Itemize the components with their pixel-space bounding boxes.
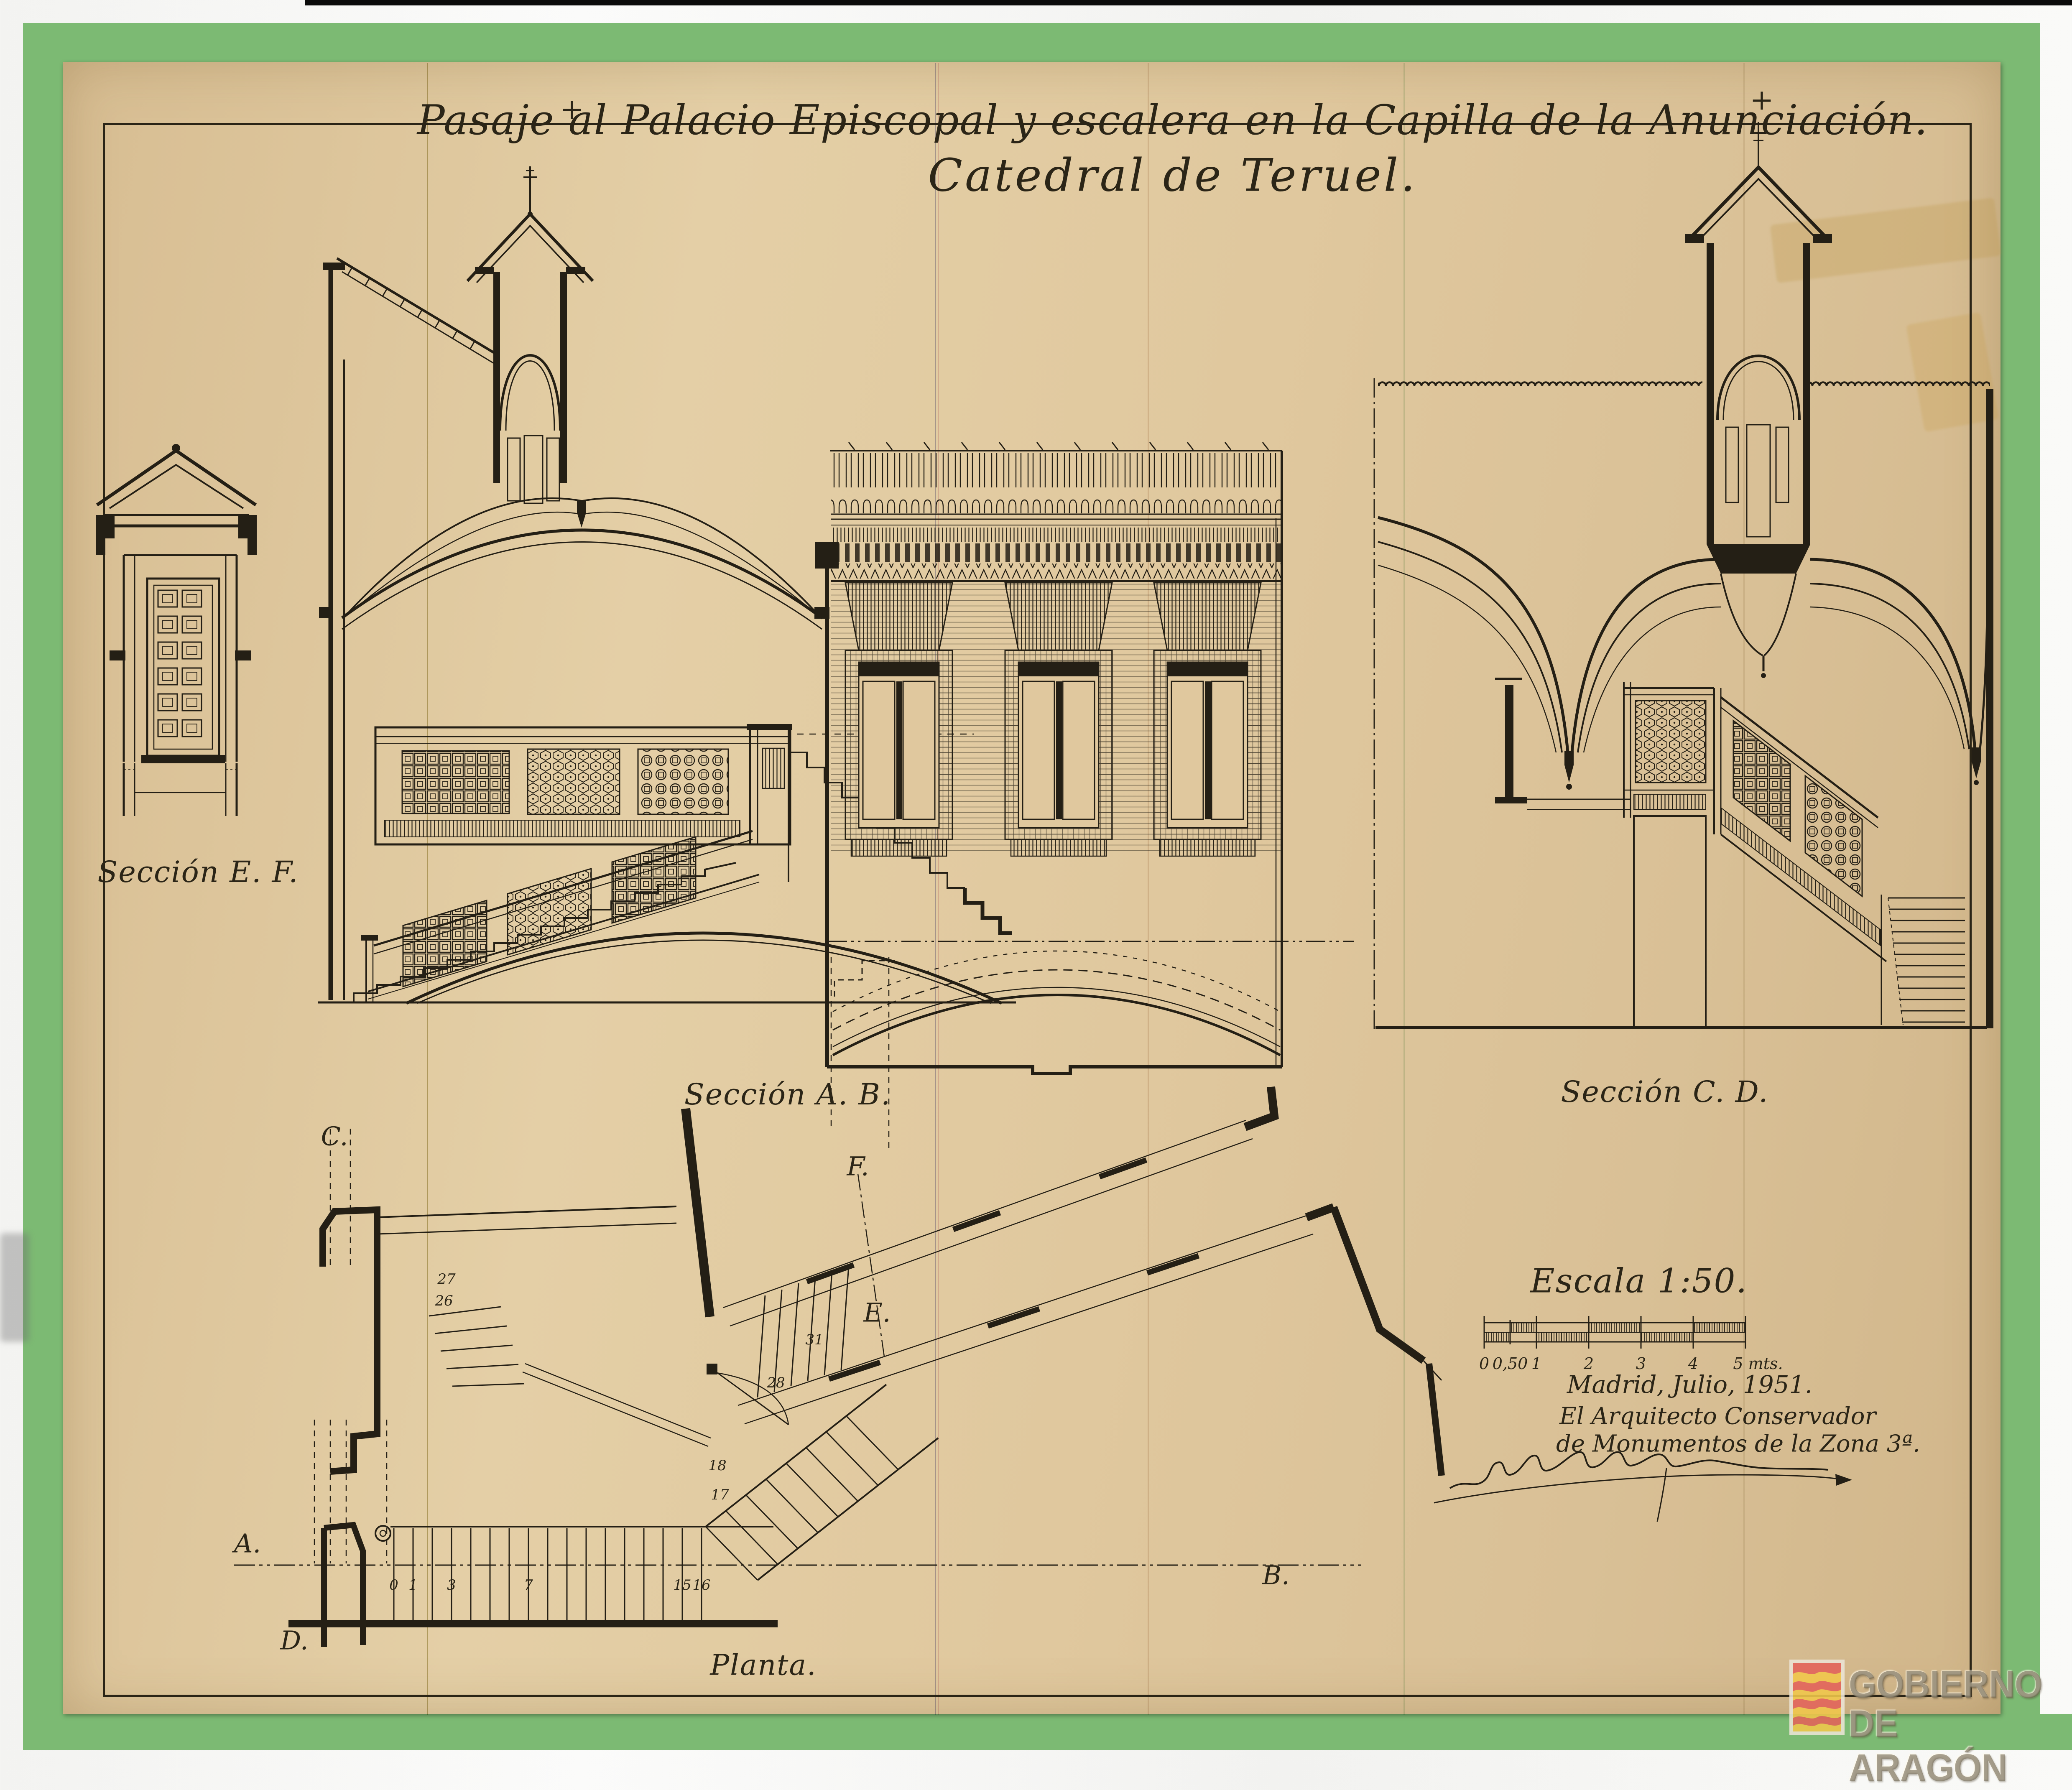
aragon-watermark: GOBIERNO DE ARAGÓN [1785,1655,2072,1750]
aragon-flag-icon [1789,1660,1848,1739]
attribution-line1: Madrid, Julio, 1951. [1567,1370,1812,1399]
scale-tick: 0 [1479,1354,1489,1373]
step-number: 28 [767,1374,785,1391]
scale-tick: 0,50 [1493,1354,1528,1373]
step-number: 1 [408,1577,418,1594]
section-ef-drawing [96,444,257,816]
attribution-line2: El Arquitecto Conservador [1559,1403,1876,1430]
label-planta: Planta. [710,1649,817,1682]
section-ab-elevation [815,442,1354,1073]
sheet-title-line2: Catedral de Teruel. [928,150,1417,202]
scale-bar [1484,1316,1745,1349]
step-number: 16 [692,1577,710,1594]
step-number: 31 [805,1331,823,1348]
label-seccion-cd: Sección C. D. [1561,1075,1768,1109]
attribution-line3: de Monumentos de la Zona 3ª. [1556,1430,1920,1458]
scale-label: Escala 1:50. [1530,1262,1748,1300]
watermark-line1: GOBIERNO [1849,1663,2042,1707]
title-cross-mark-left: + [560,93,584,126]
watermark-line2: DE ARAGÓN [1849,1702,2059,1790]
step-number: 27 [437,1271,455,1288]
plan-point-a: A. [234,1528,261,1559]
sheet-title-line1: Pasaje al Palacio Episcopal y escalera e… [417,97,1929,144]
section-cd-drawing [1374,122,1993,1029]
step-number: 15 [673,1577,691,1594]
plan-point-f: F. [847,1151,869,1182]
drawing-canvas [0,0,2072,1750]
step-number: 26 [435,1293,453,1309]
step-number: 7 [524,1577,533,1594]
plan-point-e: E. [864,1298,891,1328]
label-seccion-ab: Sección A. B. [684,1077,891,1112]
scale-tick: 1 [1531,1354,1541,1373]
step-number: 17 [711,1487,729,1503]
step-number: 3 [447,1577,456,1594]
plan-point-b: B. [1262,1560,1289,1591]
plan-point-c: C. [321,1121,348,1152]
plan-drawing [234,957,1442,1647]
label-seccion-ef: Sección E. F. [97,855,299,889]
signature [1434,1452,1852,1522]
title-cross-mark-right: + [1750,84,1774,117]
plan-point-d: D. [280,1625,308,1656]
step-number: 0 [389,1577,398,1594]
step-number: 18 [708,1457,726,1474]
